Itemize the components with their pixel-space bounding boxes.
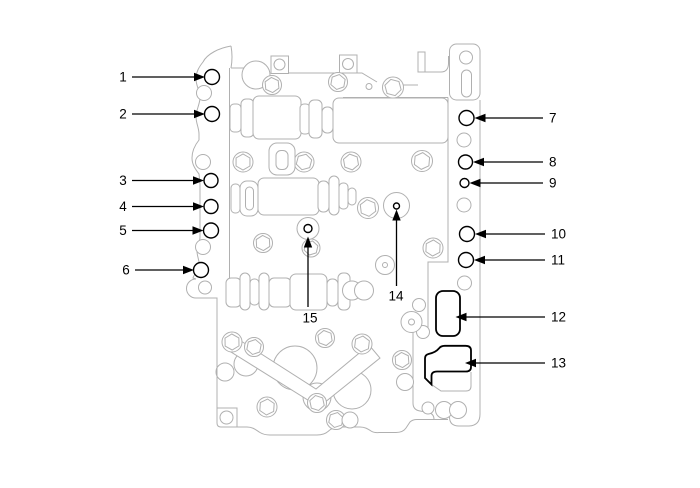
callout-4-arrow [132,202,204,210]
callout-3-target [204,174,218,188]
callout-7-target [459,111,474,126]
callout-13-arrow [465,359,545,367]
top-bar [418,52,425,72]
callout-9-target [460,179,469,188]
callout-5-target [204,223,219,238]
callout-12-label: 12 [551,310,566,325]
callout-7-arrow [475,114,544,122]
callout-15-target [304,225,312,233]
callout-8-label: 8 [549,155,557,170]
callout-5-label: 5 [119,223,127,238]
callout-10-label: 10 [551,227,566,242]
callout-1-label: 1 [119,70,127,85]
callout-13-target-bracket [425,346,471,385]
callout-2-target [205,107,220,122]
edge-holes-right [342,133,472,428]
callout-11-target [459,253,474,268]
callout-2-label: 2 [119,107,127,122]
callout-10-arrow [475,230,545,238]
spool-row-a [230,96,448,143]
callout-14-arrow [392,210,400,287]
hex-bolts-lower [222,329,412,430]
callout-8-target [459,155,473,169]
callout-9-arrow [470,179,544,187]
callout-10-target [460,227,475,242]
rail-slot [462,70,472,97]
callout-14-label: 14 [388,289,404,304]
callout-4-label: 4 [119,199,127,214]
callout-12-arrow [456,313,546,321]
spool-row-b [231,176,356,216]
callout-1-arrow [132,73,205,81]
callout-14-target [394,203,400,209]
callout-11-label: 11 [551,253,565,268]
spool-row-c [226,273,374,310]
callout-6-label: 6 [122,263,130,278]
retainer-bracket [269,143,295,175]
callout-12-target-solenoid-slot [436,291,460,336]
callout-13-label: 13 [551,356,566,371]
callout-6-arrow [135,266,194,274]
callout-3-arrow [132,176,204,184]
callout-11-arrow [474,256,545,264]
callout-6-target [194,263,209,278]
callout-3-label: 3 [119,173,127,188]
valve-body-diagram: 1 2 3 4 5 6 7 8 9 10 11 12 13 14 15 [0,0,700,488]
callout-2-arrow [132,110,205,118]
callout-4-target [204,200,218,214]
callout-9-label: 9 [549,176,557,191]
callout-5-arrow [132,226,204,234]
diagram-page: 1 2 3 4 5 6 7 8 9 10 11 12 13 14 15 [0,0,700,488]
callout-7-label: 7 [549,111,557,126]
callout-8-arrow [473,158,543,166]
callout-15-label: 15 [302,311,317,326]
valve-body-drawing [187,44,481,435]
callout-1-target [205,70,220,85]
